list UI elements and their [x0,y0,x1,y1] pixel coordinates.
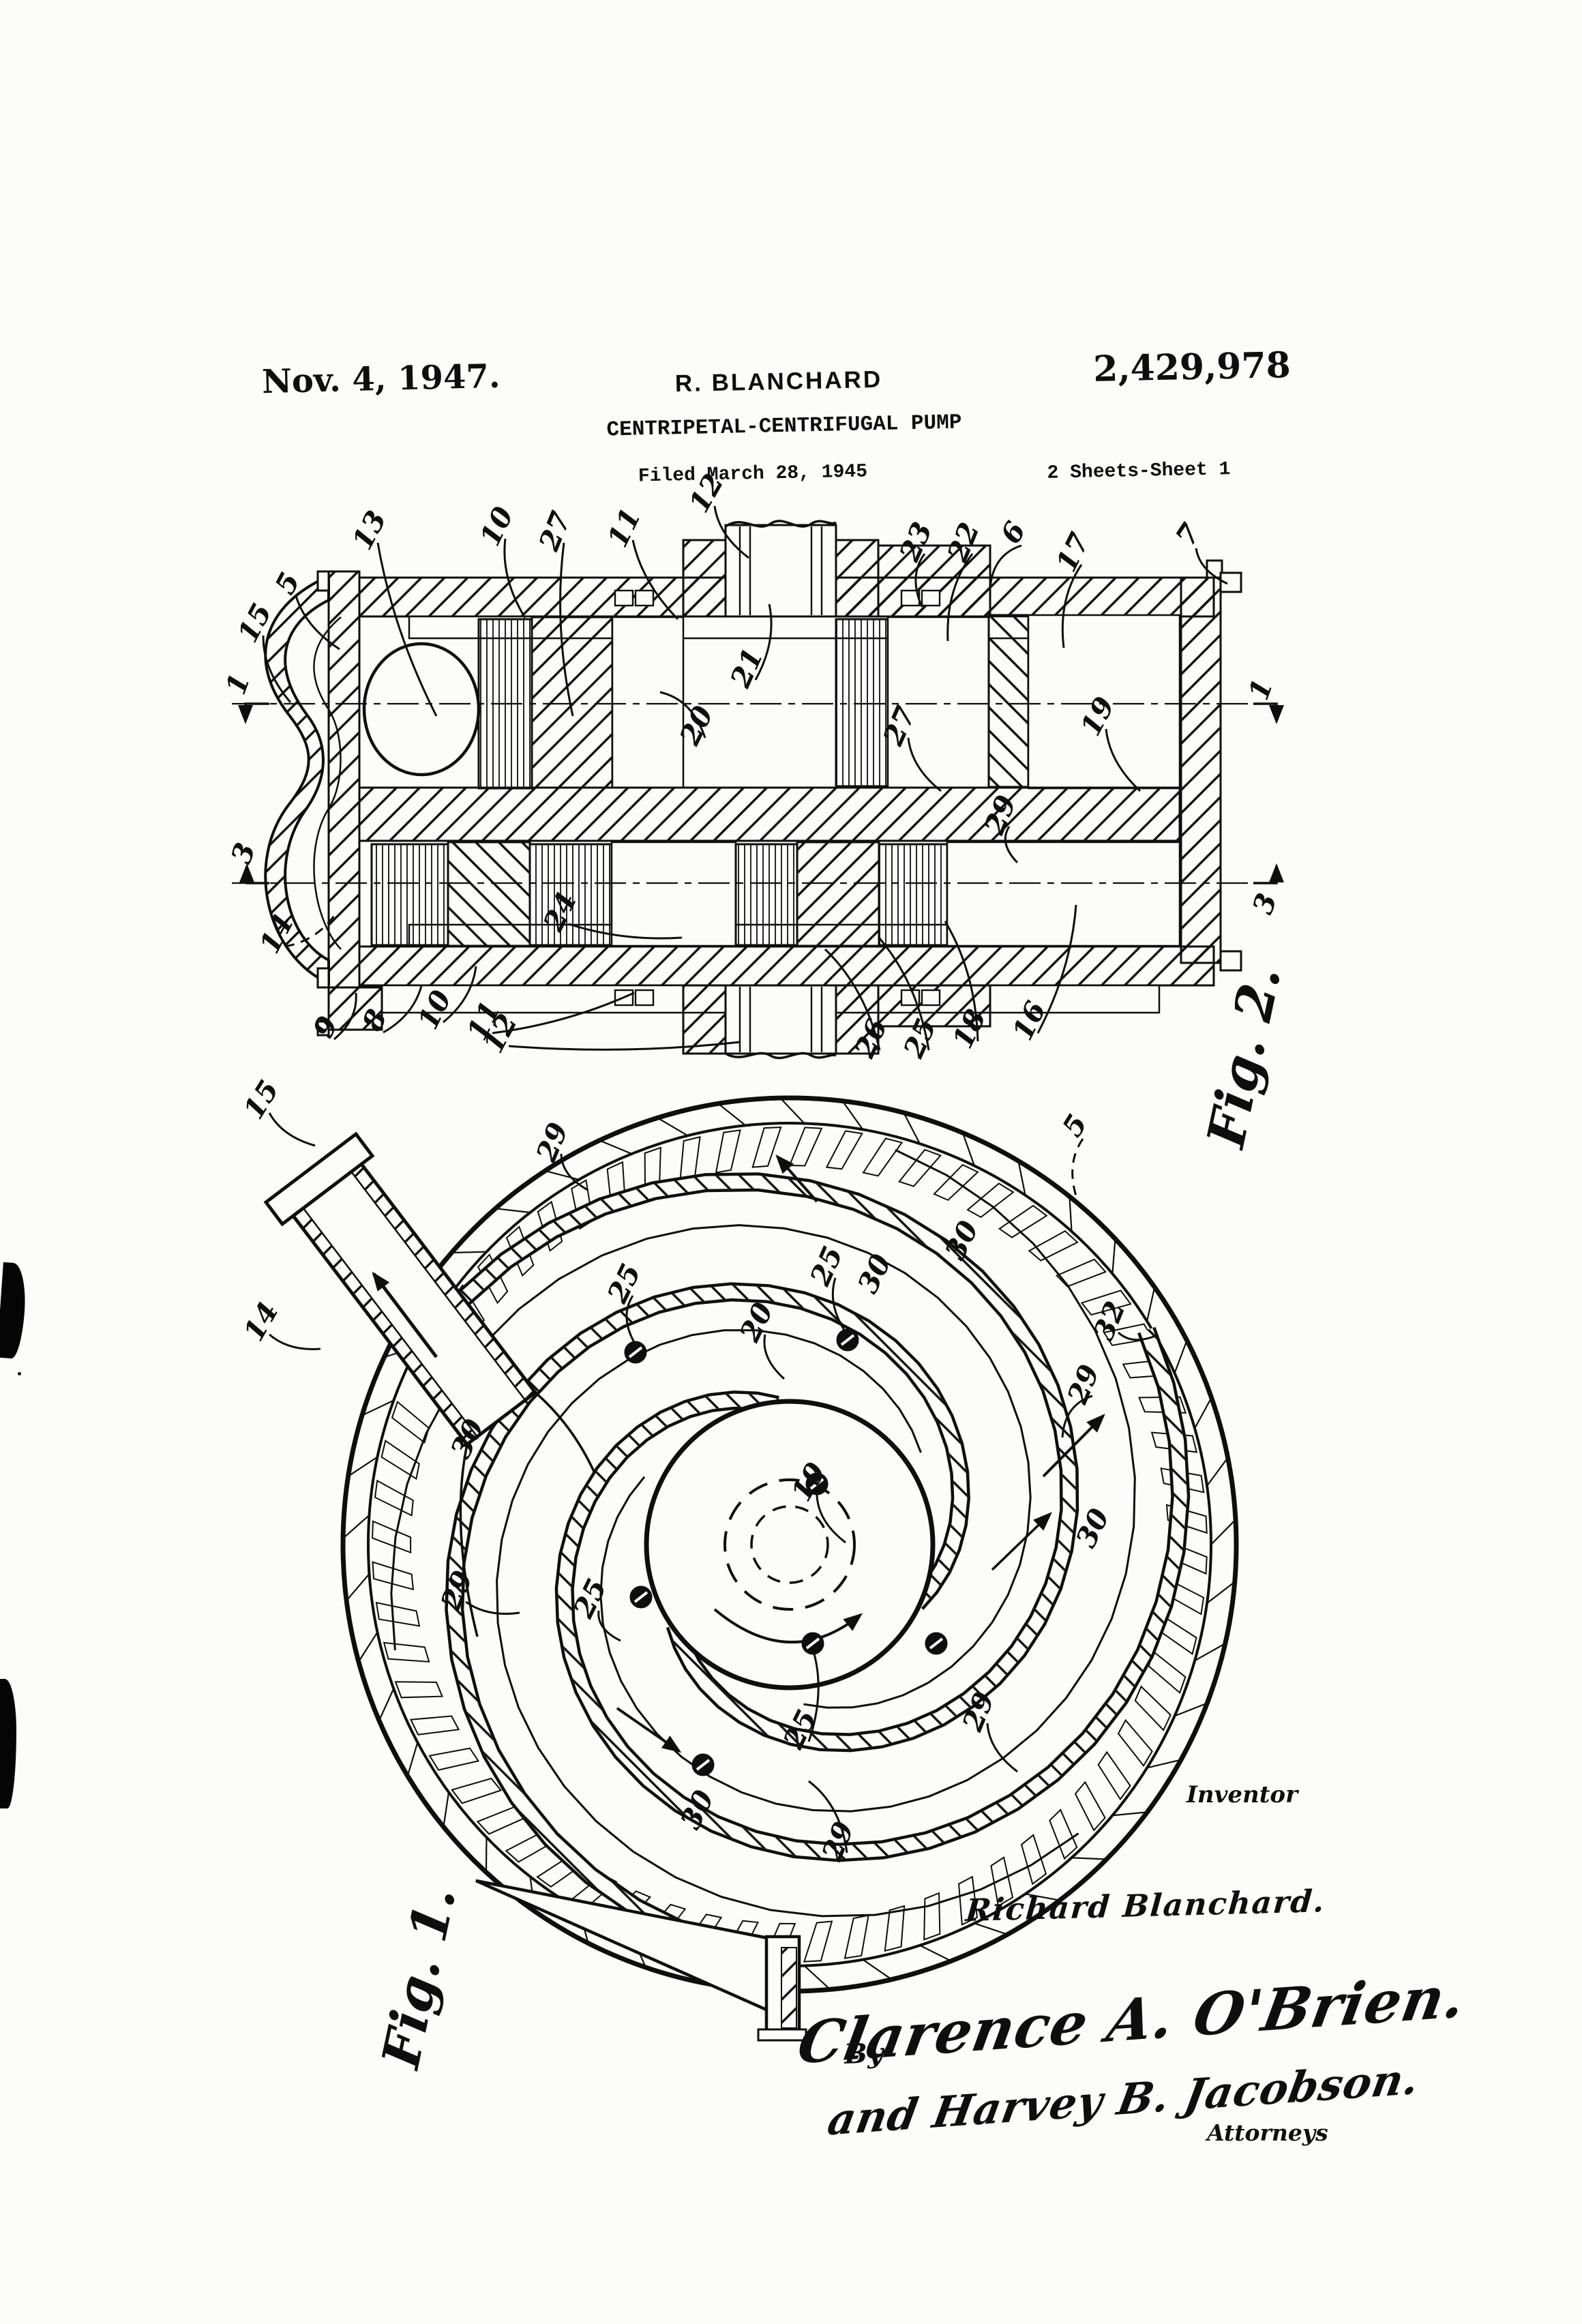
fig1-hub-disc [646,1401,933,1688]
figure-caption: Fig. 2. [1195,961,1292,1154]
patent-sheet-page: Nov. 4, 1947. R. BLANCHARD 2,429,978 CEN… [0,0,1582,2324]
leader-line [466,1602,520,1614]
ref-numeral: 30 [851,1249,897,1298]
ref-numeral: 29 [1061,1360,1106,1409]
ref-numeral: 6 [994,516,1032,550]
ref-numeral: 15 [237,1075,286,1125]
ref-numeral: 3 [224,839,262,868]
ref-numeral: 20 [733,1297,780,1347]
ref-numeral: 5 [1056,1109,1094,1143]
ref-numeral: 13 [346,505,393,555]
fig2-ball-passage [364,644,479,775]
ref-numeral: 14 [237,1296,285,1346]
leader-line [269,1335,320,1349]
ref-numeral: 29 [530,1118,575,1167]
ref-numeral: 27 [533,507,578,556]
ref-numeral: 17 [1049,527,1096,577]
figure-2-cross-section [232,521,1277,1058]
leader-line [1073,1139,1083,1200]
figure-caption: Fig. 1. [370,1881,467,2074]
ref-numeral: 7 [1169,518,1208,552]
ref-numeral: 10 [473,501,520,551]
attorneys-caption: Attorneys [1207,2119,1328,2146]
ref-numeral: 25 [803,1241,849,1291]
ref-numeral: 3 [1246,889,1283,919]
ref-numeral: 1 [219,670,256,699]
ref-numeral: 21 [723,643,769,693]
leader-line [764,1335,784,1379]
scan-artifact [18,1372,21,1375]
leader-line [269,1113,315,1146]
ref-numeral: 11 [601,503,647,552]
ref-numeral: 29 [434,1566,479,1615]
ref-numeral: 12 [683,468,730,518]
ref-numeral: 1 [1242,675,1279,704]
inventor-caption: Inventor [1186,1781,1298,1808]
